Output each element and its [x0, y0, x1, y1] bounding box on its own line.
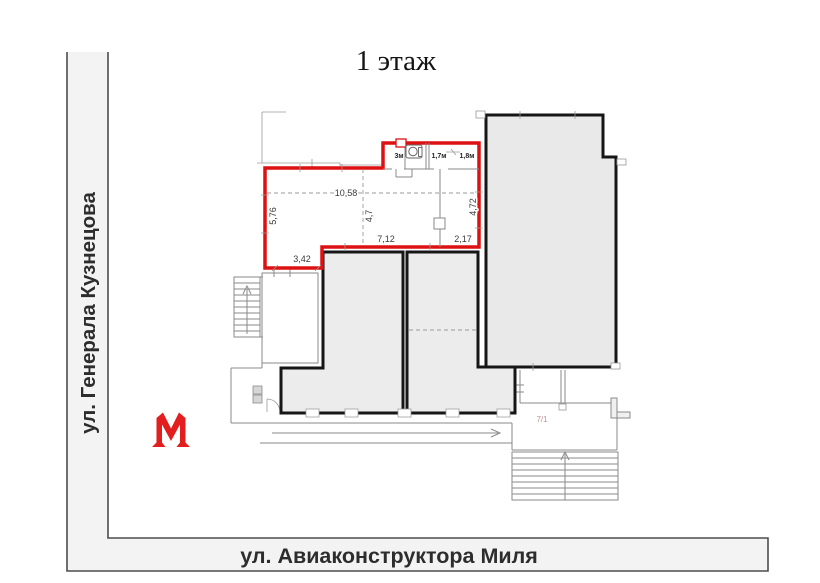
street-name-horizontal: ул. Авиаконструктора Миля — [240, 544, 538, 568]
room-label-17: 1,7м — [432, 153, 447, 160]
door-swing — [267, 399, 280, 412]
room-label-18: 1,8м — [460, 153, 475, 160]
dim-bottom-mid: 7,12 — [377, 234, 395, 244]
floor-plan-canvas: ул. Генерала Кузнецова ул. Авиаконструкт… — [0, 0, 820, 583]
dim-inner-height: 4,7 — [364, 210, 374, 223]
building-main — [486, 115, 616, 367]
window-hatch — [253, 395, 262, 403]
toilet-icon — [406, 145, 422, 158]
building-number: 7/1 — [536, 415, 548, 424]
stairs-up-arrow — [243, 286, 251, 334]
lobby-room — [262, 273, 318, 363]
staircase-bottom — [512, 452, 618, 500]
ramp-strip — [231, 423, 512, 443]
page-title: 1 этаж — [356, 45, 437, 77]
yard-right: 7/1 — [512, 370, 630, 450]
shaft-box — [396, 139, 406, 147]
dim-top-width: 10,58 — [335, 188, 358, 198]
metro-logo-icon — [152, 413, 190, 448]
dim-left-wall: 5,76 — [268, 207, 278, 225]
pilaster — [611, 363, 620, 369]
flag-bar — [617, 412, 630, 418]
flag-post — [611, 398, 617, 418]
room-label-wc: 3м — [394, 153, 403, 160]
window-hatch — [253, 386, 262, 394]
floor-plan-page: ул. Генерала Кузнецова ул. Авиаконструкт… — [0, 0, 820, 583]
pilaster — [476, 111, 485, 118]
dim-bottom-right: 2,17 — [454, 234, 472, 244]
canopy-outline — [257, 112, 383, 167]
staircase-left — [234, 277, 263, 337]
street-name-vertical: ул. Генерала Кузнецова — [77, 191, 100, 433]
dim-bottom-left-step: 3,42 — [293, 254, 311, 264]
room-left — [281, 252, 403, 413]
dim-right-wall: 4,72 — [468, 198, 478, 216]
unit-outline — [265, 143, 479, 268]
ramp-direction-arrow — [272, 429, 500, 437]
pilaster — [617, 159, 626, 165]
